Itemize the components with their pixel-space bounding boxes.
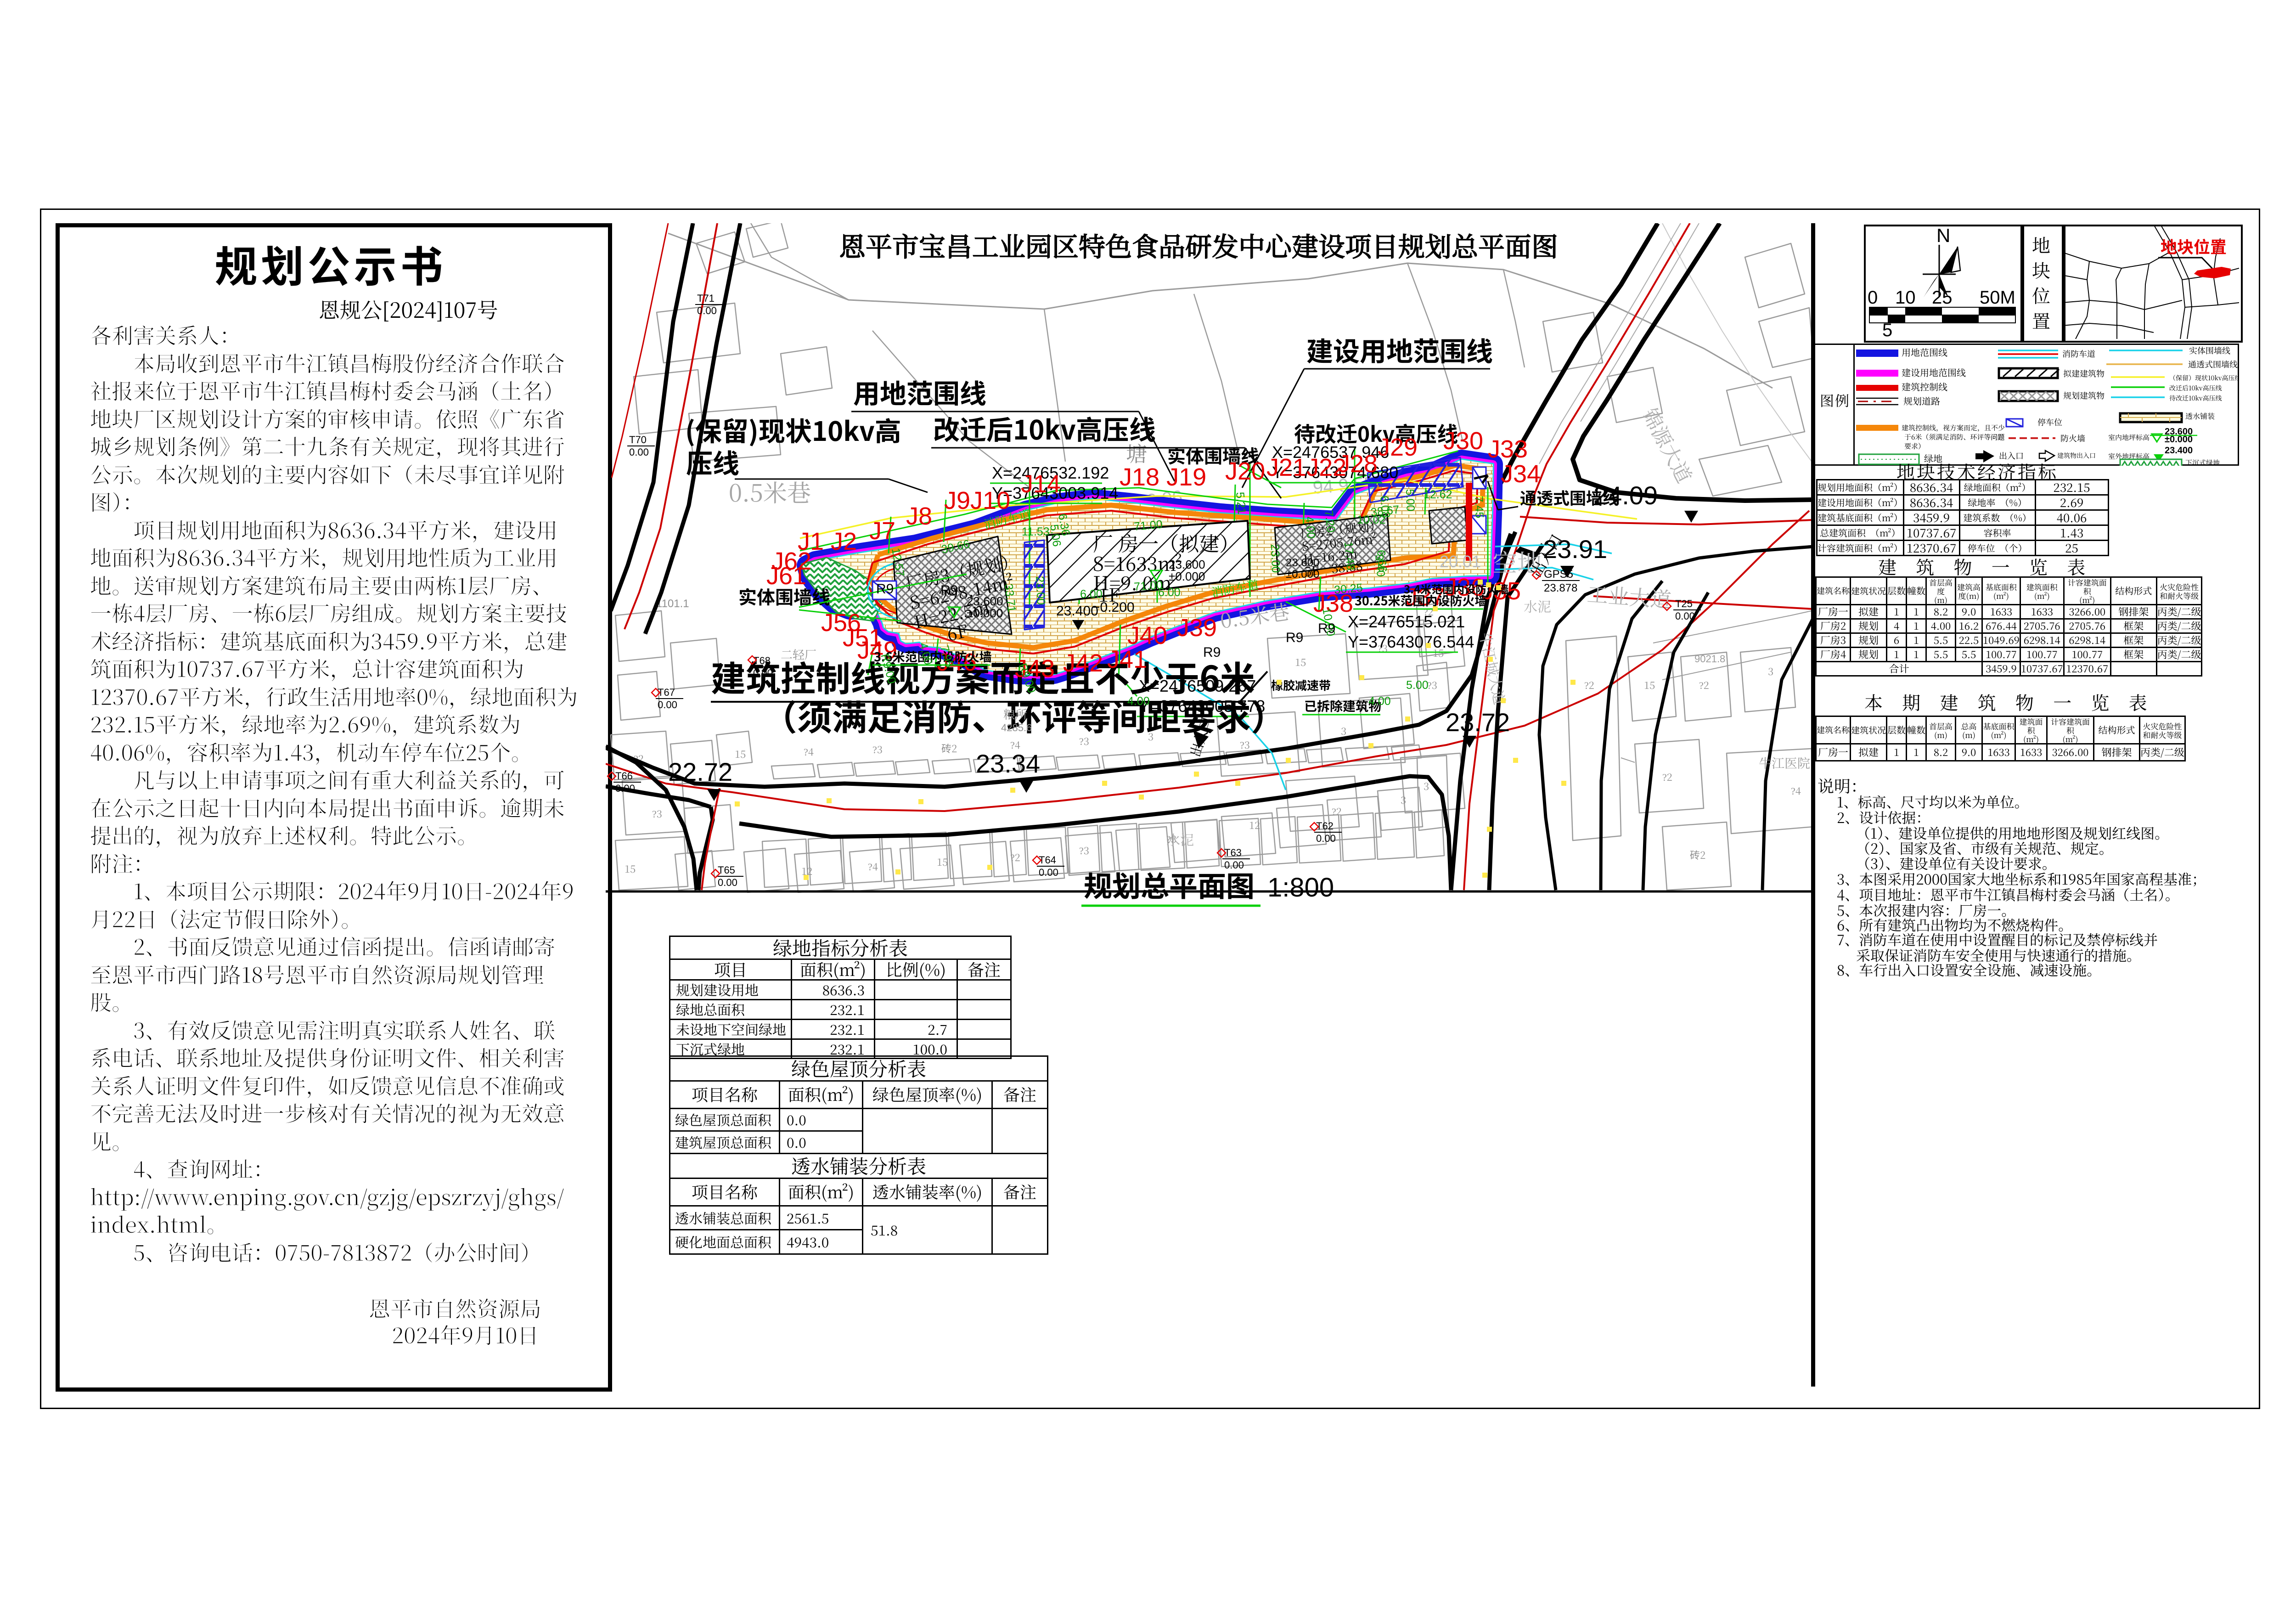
svg-text:拟建建筑物: 拟建建筑物: [2063, 367, 2105, 379]
svg-text:要求）: 要求）: [1904, 441, 1925, 451]
svg-text:R9: R9: [876, 581, 894, 597]
svg-text:3: 3: [1401, 793, 1406, 807]
svg-text:23.72: 23.72: [1446, 708, 1510, 737]
svg-text:71.00: 71.00: [1133, 518, 1163, 533]
svg-text:±0.000: ±0.000: [1169, 570, 1205, 583]
svg-text:防火墙: 防火墙: [2060, 432, 2085, 444]
svg-text:1:800: 1:800: [1267, 873, 1334, 902]
svg-text:建筑物出入口: 建筑物出入口: [2057, 451, 2096, 460]
svg-text:规划建筑物: 规划建筑物: [2063, 389, 2105, 401]
svg-text:4285.6: 4285.6: [1001, 722, 1032, 733]
svg-text:0.00: 0.00: [697, 305, 717, 316]
svg-text:N: N: [1936, 225, 1950, 246]
svg-text:建设用地范围线: 建设用地范围线: [1306, 330, 1493, 369]
svg-text:T65: T65: [718, 864, 735, 876]
svg-text:0.00: 0.00: [753, 667, 773, 679]
svg-text:压线: 压线: [686, 442, 739, 481]
svg-text:J14: J14: [1021, 470, 1061, 498]
svg-text:23.878: 23.878: [1544, 582, 1577, 594]
svg-text:J39: J39: [1177, 614, 1217, 642]
svg-text:建筑控制线: 建筑控制线: [1902, 380, 1947, 393]
svg-text:通透式围墙线: 通透式围墙线: [2188, 358, 2238, 370]
svg-text:6.00: 6.00: [1080, 588, 1103, 601]
svg-text:±0.000: ±0.000: [967, 606, 1003, 620]
svg-text:5.00: 5.00: [1406, 679, 1429, 692]
svg-text:4.00: 4.00: [1303, 516, 1317, 539]
svg-text:橡胶减速带: 橡胶减速带: [1271, 677, 1331, 694]
svg-text:?3: ?3: [1079, 843, 1089, 857]
svg-text:−0.200: −0.200: [1092, 600, 1135, 615]
svg-text:停车位: 停车位: [2037, 416, 2062, 428]
svg-text:15: 15: [1295, 655, 1306, 669]
svg-text:砖2: 砖2: [1690, 848, 1705, 862]
svg-text:3: 3: [1341, 724, 1346, 738]
svg-text:J29: J29: [1378, 434, 1418, 461]
svg-text:改迁后10kv高压线: 改迁后10kv高压线: [933, 409, 1156, 447]
svg-text:24.09: 24.09: [1593, 481, 1658, 510]
svg-text:23.400: 23.400: [2165, 445, 2193, 456]
svg-text:T25: T25: [1675, 598, 1693, 609]
svg-text:?4: ?4: [804, 744, 814, 759]
svg-text:5: 5: [1882, 320, 1892, 339]
svg-text:?3: ?3: [872, 742, 883, 756]
svg-text:0.00: 0.00: [1675, 610, 1695, 622]
svg-text:J7: J7: [869, 517, 895, 545]
svg-text:50M: 50M: [1980, 288, 2015, 308]
svg-text:?2: ?2: [1662, 770, 1672, 784]
svg-text:实体围墙线: 实体围墙线: [2189, 344, 2230, 356]
svg-text:0.00: 0.00: [629, 446, 649, 458]
svg-text:0.00: 0.00: [718, 877, 737, 888]
svg-text:?2: ?2: [1332, 804, 1342, 818]
svg-text:?4: ?4: [868, 859, 878, 874]
svg-text:23.34: 23.34: [976, 749, 1040, 778]
svg-text:12: 12: [1249, 818, 1260, 832]
svg-text:?2: ?2: [1010, 850, 1020, 864]
svg-text:建筑控制线，视方案而定，且不少: 建筑控制线，视方案而定，且不少: [1902, 423, 2005, 433]
svg-text:15: 15: [625, 862, 636, 876]
svg-text:J34: J34: [1501, 460, 1541, 488]
svg-text:T70: T70: [629, 434, 647, 445]
svg-text:5.00: 5.00: [1403, 489, 1417, 512]
svg-text:于6米（须满足消防、环评等问题: 于6米（须满足消防、环评等问题: [1904, 432, 2004, 442]
svg-text:22.72: 22.72: [668, 757, 732, 786]
svg-text:0.00: 0.00: [1316, 833, 1336, 844]
svg-text:R9: R9: [1286, 630, 1303, 645]
svg-text:水泥: 水泥: [1524, 596, 1551, 616]
svg-text:17.48: 17.48: [1342, 541, 1357, 571]
svg-text:恩平市宝昌工业园区特色食品研发中心建设项目规划总平面图: 恩平市宝昌工业园区特色食品研发中心建设项目规划总平面图: [839, 226, 1558, 264]
svg-text:15: 15: [735, 747, 746, 761]
svg-text:改迁后10kv高压线: 改迁后10kv高压线: [2169, 383, 2222, 393]
svg-text:?2: ?2: [1699, 678, 1709, 692]
svg-text:J20: J20: [1225, 457, 1265, 485]
svg-text:T66: T66: [615, 770, 633, 782]
svg-text:6.08: 6.08: [1378, 495, 1392, 519]
svg-text:透水铺装: 透水铺装: [2185, 411, 2215, 421]
svg-text:J42: J42: [1063, 649, 1103, 677]
svg-text:20.01: 20.01: [1440, 552, 1481, 571]
svg-text:地块位置: 地块位置: [2161, 234, 2227, 258]
svg-text:15: 15: [937, 855, 948, 869]
svg-text:0.00: 0.00: [1039, 867, 1058, 878]
svg-text:1101.1: 1101.1: [656, 598, 689, 610]
svg-text:R9: R9: [940, 583, 958, 598]
svg-text:7.20: 7.20: [1322, 509, 1338, 533]
svg-text:锦源大道: 锦源大道: [1637, 402, 1700, 487]
svg-text:R9: R9: [1203, 645, 1221, 660]
svg-text:0.00: 0.00: [1224, 859, 1244, 871]
svg-text:GPS5: GPS5: [1544, 568, 1573, 581]
svg-text:5.21: 5.21: [1233, 491, 1248, 515]
svg-text:水泥: 水泥: [1166, 829, 1194, 849]
svg-text:J41: J41: [1107, 646, 1147, 673]
svg-text:±0.000: ±0.000: [2165, 434, 2193, 445]
svg-text:Y=37643076.544: Y=37643076.544: [1348, 632, 1474, 651]
svg-text:3.4米范围内设防火墙: 3.4米范围内设防火墙: [1404, 581, 1508, 597]
svg-text:R9: R9: [1318, 621, 1335, 636]
svg-text:室内地坪标高: 室内地坪标高: [2108, 433, 2150, 442]
svg-text:J62: J62: [771, 547, 811, 575]
svg-text:11.53: 11.53: [1022, 525, 1050, 538]
svg-text:下沉式绿地: 下沉式绿地: [2185, 458, 2220, 466]
svg-text:T62: T62: [1316, 820, 1334, 832]
svg-text:?4: ?4: [1791, 784, 1801, 798]
svg-text:规划道路: 规划道路: [1903, 394, 1940, 407]
svg-text:T71: T71: [697, 293, 715, 304]
svg-text:J8: J8: [906, 502, 932, 530]
svg-text:J40: J40: [1127, 622, 1167, 649]
svg-text:6.66: 6.66: [1374, 549, 1389, 573]
svg-text:J28: J28: [1338, 450, 1378, 478]
svg-text:建设用地范围线: 建设用地范围线: [1902, 366, 1966, 379]
svg-text:23.600: 23.600: [1286, 557, 1319, 569]
svg-text:用地范围线: 用地范围线: [853, 372, 986, 411]
svg-text:T63: T63: [1224, 847, 1242, 858]
svg-text:30.25: 30.25: [1334, 581, 1363, 597]
svg-text:4.00: 4.00: [1127, 695, 1150, 708]
svg-text:10: 10: [1895, 288, 1916, 308]
svg-text:J33: J33: [1488, 435, 1528, 463]
svg-text:15: 15: [1644, 678, 1655, 692]
svg-text:0.00: 0.00: [615, 783, 635, 794]
svg-text:4.00: 4.00: [1368, 695, 1391, 708]
svg-text:J30: J30: [1443, 427, 1483, 455]
svg-text:71.00: 71.00: [1133, 579, 1163, 593]
svg-text:23.00: 23.00: [1268, 544, 1282, 573]
svg-text:3: 3: [1424, 779, 1429, 793]
svg-text:12.62: 12.62: [1424, 488, 1452, 501]
svg-text:（保留）现状10kv高压线: （保留）现状10kv高压线: [2169, 373, 2239, 383]
svg-text:?3: ?3: [652, 806, 662, 821]
svg-text:0.00: 0.00: [658, 699, 677, 710]
svg-text:3: 3: [1768, 664, 1773, 678]
svg-text:25: 25: [1932, 288, 1953, 308]
svg-text:X=2476515.021: X=2476515.021: [1348, 612, 1465, 631]
svg-text:粮所: 粮所: [1003, 705, 1027, 722]
svg-text:J18 J19: J18 J19: [1120, 463, 1206, 491]
svg-text:二轻厂: 二轻厂: [781, 646, 816, 663]
svg-text:7.45: 7.45: [1472, 496, 1486, 519]
svg-text:±0.000: ±0.000: [1286, 568, 1319, 581]
svg-text:0: 0: [1868, 288, 1878, 308]
svg-text:J56: J56: [821, 609, 861, 637]
svg-text:牛江医院: 牛江医院: [1759, 754, 1810, 772]
svg-text:?2: ?2: [1584, 678, 1594, 692]
svg-text:?3: ?3: [1427, 678, 1437, 692]
svg-text:砖2: 砖2: [941, 741, 957, 756]
svg-text:9021.8: 9021.8: [1694, 653, 1725, 665]
svg-text:23.00: 23.00: [1033, 576, 1047, 605]
svg-text:工业大道: 工业大道: [1586, 578, 1672, 614]
svg-text:J9J10: J9J10: [944, 487, 1010, 514]
svg-text:J21J22: J21J22: [1266, 454, 1346, 481]
svg-text:用地范围线: 用地范围线: [1902, 345, 1947, 359]
svg-text:待改迁10kv高压线: 待改迁10kv高压线: [2169, 394, 2222, 403]
svg-text:消防车道: 消防车道: [2062, 348, 2095, 360]
